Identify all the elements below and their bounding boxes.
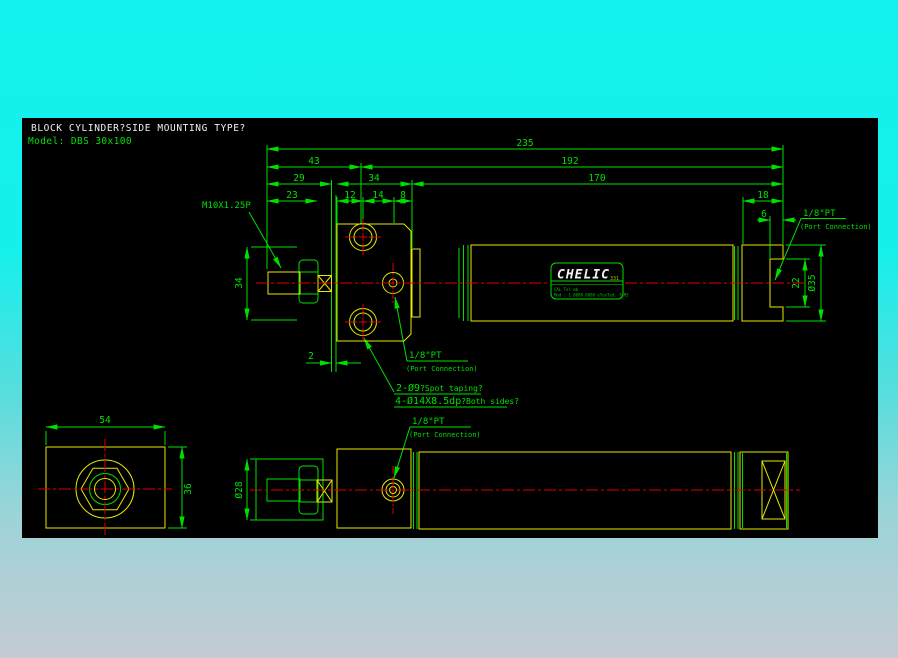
dim-hole-to-port: 14 xyxy=(372,190,384,201)
chelic-logo-code: 331 xyxy=(610,276,619,282)
dim-tube-diameter: Ø35 xyxy=(807,274,818,291)
dim-mount-height: 34 xyxy=(234,277,245,289)
dim-port-recess: 6 xyxy=(761,209,767,220)
dim-hole-to-end: 192 xyxy=(561,156,578,167)
drawing-title: BLOCK CYLINDER?SIDE MOUNTING TYPE? xyxy=(31,123,246,134)
dim-block-length: 34 xyxy=(368,173,380,184)
note-counterbores: 4-Ø14X8.5dp?Both sides? xyxy=(395,395,519,407)
label-port-bottom-note: (Port Connection) xyxy=(409,431,481,439)
dim-rod-overhang: 29 xyxy=(293,173,305,184)
dim-port-to-face: 8 xyxy=(400,190,406,201)
dim-rod-thread-length: 23 xyxy=(286,190,297,201)
drawing-model: Model: DBS 30x100 xyxy=(28,136,132,147)
chelic-fine-print-2: Mod : 1.8088.8888 eTeeTed. TeMJ xyxy=(554,293,629,298)
desktop-background: { "window": { "background_top": "#13f2ee… xyxy=(0,0,898,658)
note-through-holes: 2-Ø9?Spot taping? xyxy=(396,382,483,394)
dim-rod-to-hole: 43 xyxy=(308,156,319,167)
dim-total-length: 235 xyxy=(516,138,533,149)
chelic-fine-print-1: CAL Tel mb xyxy=(554,287,579,292)
dim-body-length: 170 xyxy=(588,173,605,184)
dimension-linework xyxy=(46,145,846,528)
label-port-rear: 1/8"PT xyxy=(803,209,836,219)
dim-cover-diameter: Ø28 xyxy=(234,481,245,498)
label-port-front-note: (Port Connection) xyxy=(406,365,478,373)
label-port-bottom: 1/8"PT xyxy=(412,417,445,427)
dim-block-width: 54 xyxy=(99,415,111,426)
cad-drawing-canvas: CHELIC 331 CAL Tel mb Mod : 1.8088.8888 … xyxy=(22,118,878,538)
label-port-front: 1/8"PT xyxy=(409,351,442,361)
dim-block-depth: 36 xyxy=(183,483,194,495)
label-port-rear-note: (Port Connection) xyxy=(800,223,872,231)
cad-drawing: CHELIC 331 CAL Tel mb Mod : 1.8088.8888 … xyxy=(22,118,878,538)
dim-edge-to-hole: 12 xyxy=(344,190,355,201)
dim-port-face-height: 22 xyxy=(791,277,802,288)
chelic-label: CHELIC 331 CAL Tel mb Mod : 1.8088.8888 … xyxy=(551,263,629,299)
dim-cap-length: 18 xyxy=(757,190,769,201)
dim-plate-thickness: 2 xyxy=(308,351,314,362)
chelic-logo-text: CHELIC xyxy=(557,268,610,283)
red-centerlines xyxy=(38,219,806,537)
label-rod-thread: M10X1.25P xyxy=(202,201,251,211)
text-layer: BLOCK CYLINDER?SIDE MOUNTING TYPE? Model… xyxy=(28,123,872,499)
